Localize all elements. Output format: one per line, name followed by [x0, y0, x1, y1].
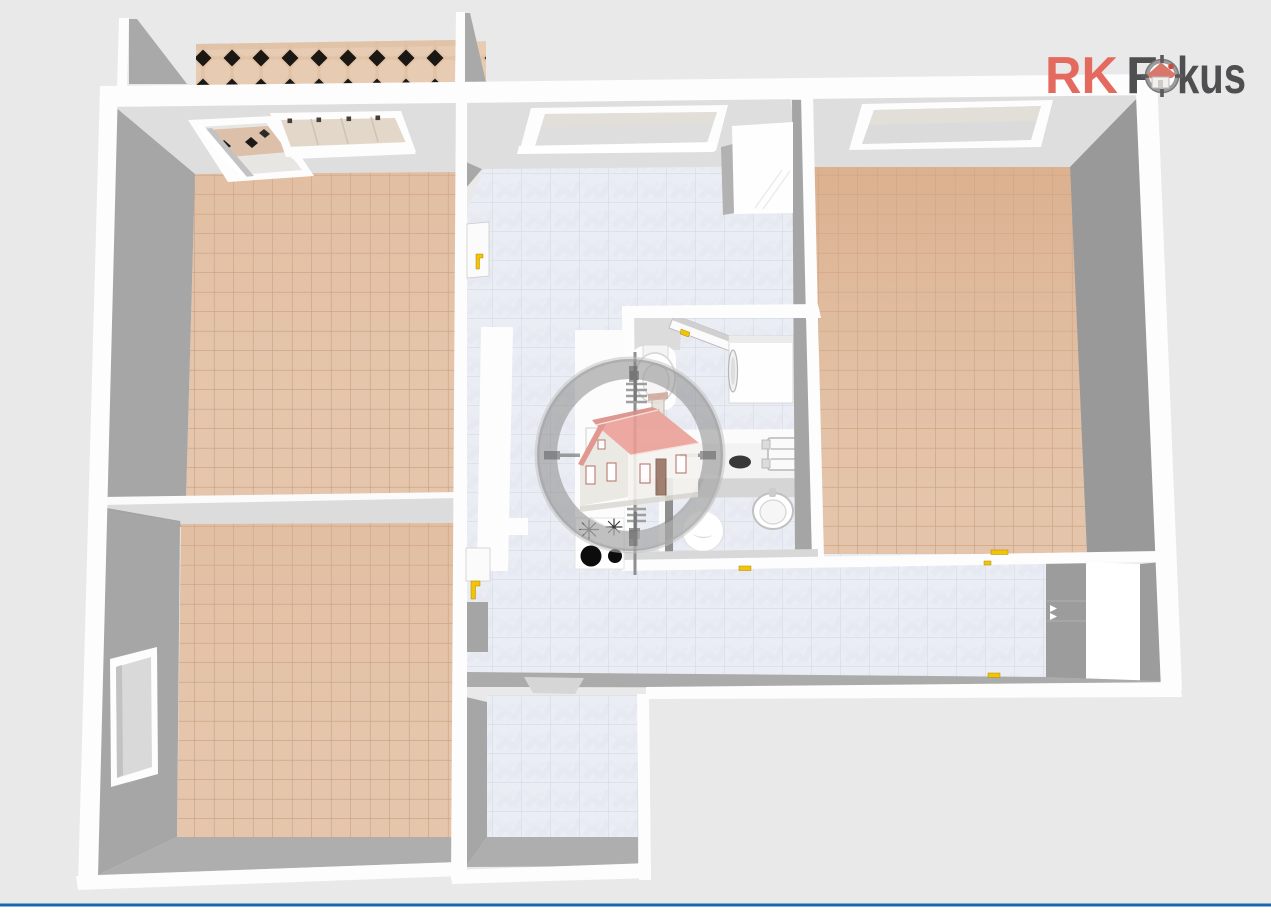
- svg-text:RK: RK: [1045, 47, 1118, 105]
- svg-text:kus: kus: [1177, 47, 1246, 105]
